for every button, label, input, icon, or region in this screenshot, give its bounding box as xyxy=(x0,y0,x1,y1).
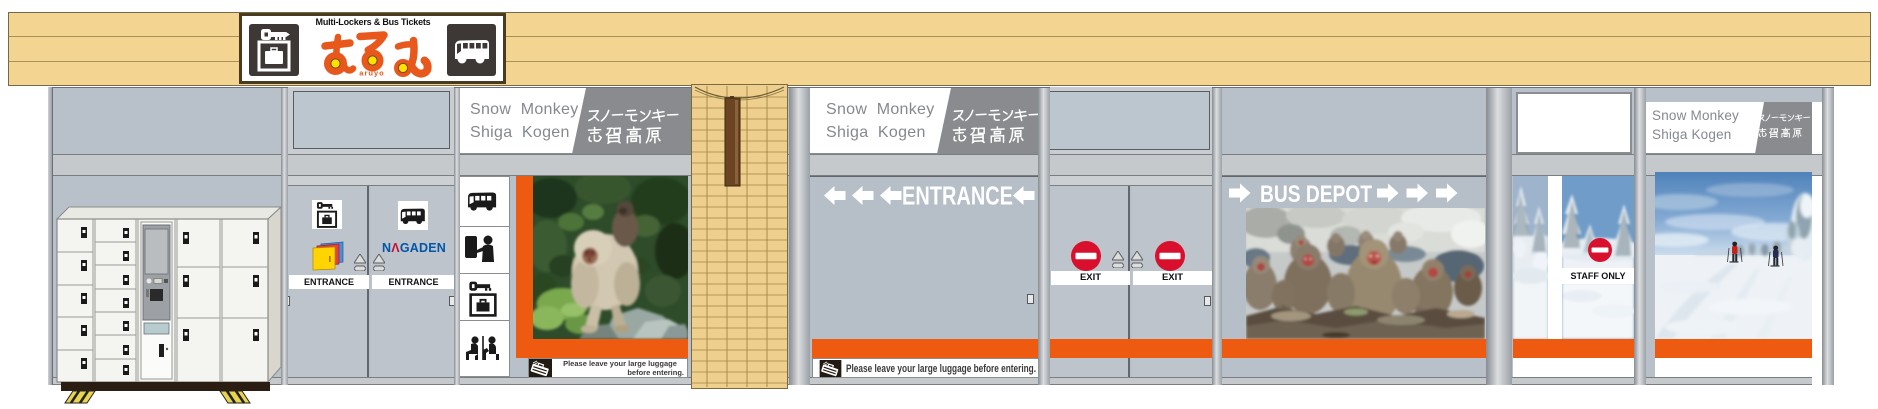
svg-text:BUS DEPOT: BUS DEPOT xyxy=(1260,181,1372,206)
svg-text:aruyo: aruyo xyxy=(359,69,384,78)
svg-text:Please leave your large luggag: Please leave your large luggage before e… xyxy=(846,363,1036,375)
svg-text:ENTRANCE: ENTRANCE xyxy=(902,184,1013,208)
